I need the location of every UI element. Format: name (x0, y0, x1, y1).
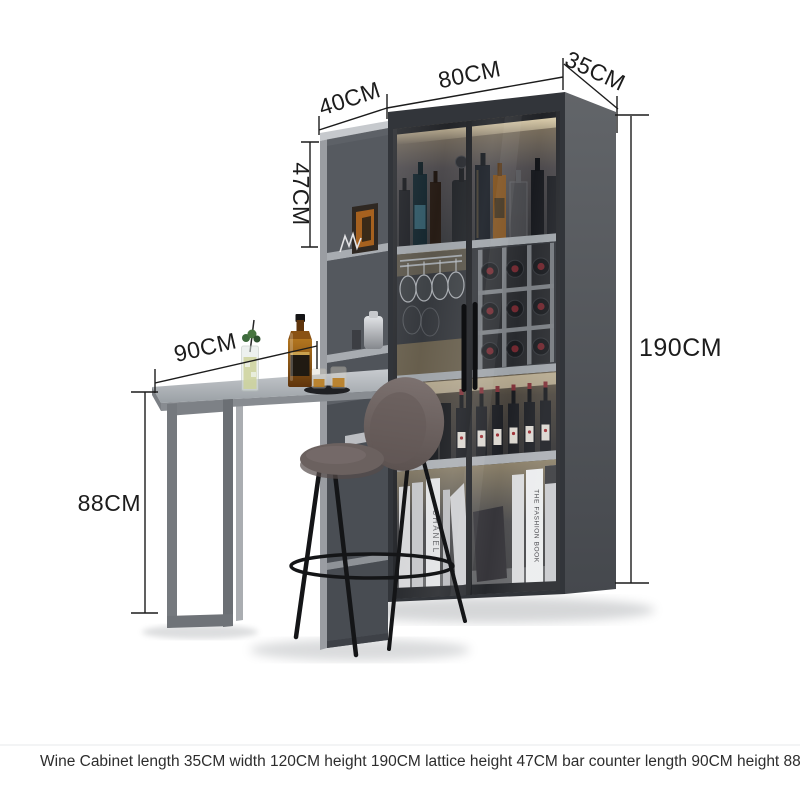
leg-frame-left-bar (167, 403, 177, 628)
seat-highlight (306, 446, 366, 464)
label-counter-height: 88CM (78, 490, 141, 516)
whiskey-pour (314, 379, 325, 387)
art-figure (362, 216, 371, 242)
shelf-compartment-5 (327, 560, 388, 641)
counter-rear-leg (236, 405, 243, 622)
label-lattice-height: 47CM (288, 162, 314, 225)
label-cabinet-depth: 35CM (561, 46, 629, 96)
stool-leg (296, 459, 321, 637)
door-handle-left (462, 304, 467, 392)
label-cabinet-width: 80CM (436, 55, 503, 93)
floor-shadows (142, 597, 655, 661)
door-handle-right (473, 302, 478, 390)
bottle-highlight (290, 333, 293, 381)
whiskey-bottle-label (291, 352, 310, 376)
wine-cabinet: CHANEL THE FASHION BOOK (388, 92, 616, 602)
whiskey-label-band (291, 352, 310, 355)
caption: Wine Cabinet length 35CM width 120CM hei… (40, 753, 785, 771)
leg-frame-bottom-bar (167, 614, 233, 628)
small-cup (352, 330, 361, 349)
counter-leg-frame (167, 399, 233, 628)
label-cabinet-height: 190CM (639, 334, 722, 362)
silver-vase-neck (369, 311, 378, 318)
whiskey-pour (333, 378, 345, 387)
table-leg-shadow (142, 625, 258, 639)
cabinet-side-panel (565, 92, 616, 594)
mint-leaf (254, 336, 261, 343)
label-shelf-width: 40CM (315, 76, 383, 120)
product-dimension-image: CHANEL THE FASHION BOOK (0, 0, 800, 800)
furniture-scene: CHANEL THE FASHION BOOK (0, 0, 800, 800)
silver-vase (364, 316, 383, 349)
label-counter-length: 90CM (171, 327, 239, 367)
image-edge-strip (0, 744, 800, 746)
leg-frame-right-bar (223, 399, 233, 627)
ice-cube (251, 372, 256, 377)
